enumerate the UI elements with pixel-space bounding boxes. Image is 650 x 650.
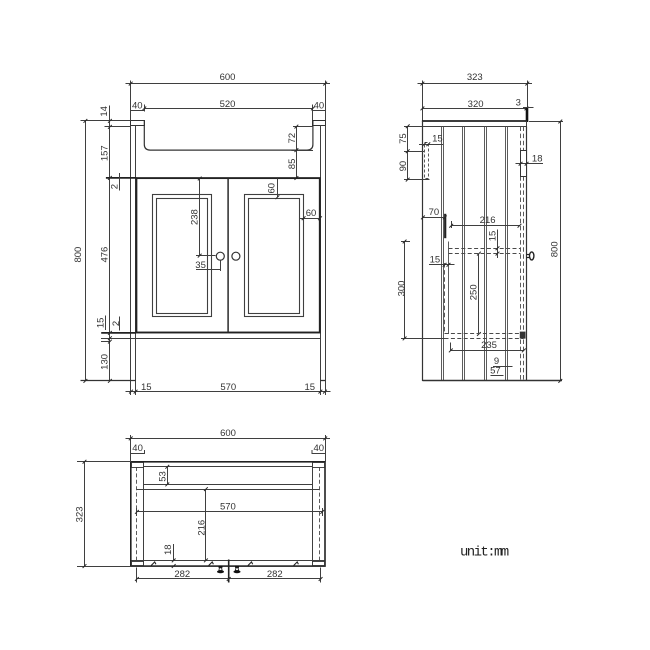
svg-text:130: 130 (100, 354, 111, 370)
svg-text:2: 2 (111, 321, 122, 326)
svg-text:35: 35 (195, 260, 206, 271)
svg-text:85: 85 (287, 159, 298, 170)
svg-text:15: 15 (141, 382, 152, 393)
svg-text:216: 216 (196, 520, 207, 536)
svg-text:40: 40 (132, 443, 143, 454)
svg-text:15: 15 (95, 318, 106, 329)
svg-text:282: 282 (267, 569, 283, 580)
svg-text:15: 15 (305, 382, 316, 393)
svg-text:53: 53 (157, 471, 168, 482)
svg-text:300: 300 (397, 281, 408, 297)
svg-text:18: 18 (532, 154, 543, 165)
svg-text:75: 75 (398, 133, 409, 144)
svg-text:40: 40 (314, 101, 325, 112)
svg-text:216: 216 (480, 215, 496, 226)
svg-text:600: 600 (220, 428, 236, 439)
svg-text:3: 3 (516, 98, 521, 109)
svg-text:570: 570 (220, 502, 236, 513)
svg-text:323: 323 (75, 506, 86, 522)
svg-text:unit:mm: unit:mm (460, 545, 509, 561)
svg-text:570: 570 (220, 382, 236, 393)
svg-text:40: 40 (132, 101, 143, 112)
svg-text:90: 90 (398, 161, 409, 172)
svg-text:70: 70 (429, 207, 440, 218)
svg-text:57: 57 (490, 366, 501, 377)
svg-text:238: 238 (189, 209, 200, 225)
svg-text:15: 15 (432, 134, 443, 145)
svg-text:15: 15 (430, 255, 441, 266)
svg-text:320: 320 (468, 99, 484, 110)
svg-text:250: 250 (468, 284, 479, 300)
svg-text:235: 235 (481, 340, 497, 351)
svg-text:18: 18 (163, 544, 174, 555)
svg-text:520: 520 (220, 99, 236, 110)
svg-text:282: 282 (174, 569, 190, 580)
svg-text:14: 14 (99, 106, 110, 117)
svg-text:15: 15 (487, 231, 498, 242)
svg-text:72: 72 (287, 133, 298, 144)
svg-text:323: 323 (467, 72, 483, 83)
svg-text:40: 40 (314, 443, 325, 454)
svg-text:60: 60 (267, 183, 278, 194)
svg-text:157: 157 (100, 145, 111, 161)
svg-text:2: 2 (109, 184, 120, 189)
svg-text:476: 476 (99, 247, 110, 263)
svg-text:800: 800 (73, 247, 84, 263)
svg-text:800: 800 (550, 241, 561, 257)
svg-text:60: 60 (306, 208, 317, 219)
svg-text:600: 600 (220, 72, 236, 83)
